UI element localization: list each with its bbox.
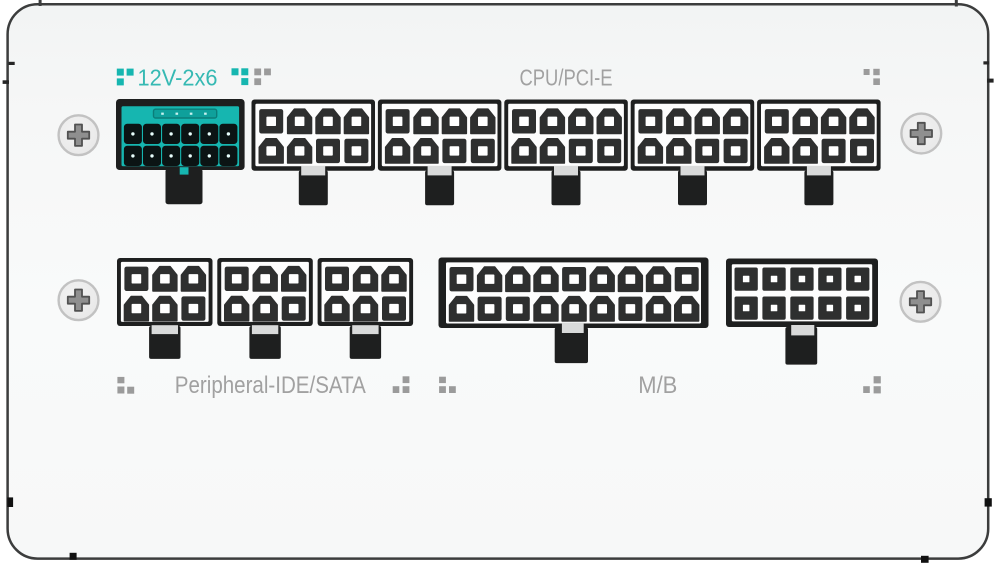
svg-text:Peripheral-IDE/SATA: Peripheral-IDE/SATA bbox=[175, 372, 366, 399]
svg-text:M/B: M/B bbox=[638, 372, 677, 399]
svg-text:CPU/PCI-E: CPU/PCI-E bbox=[520, 65, 613, 91]
svg-text:12V-2x6: 12V-2x6 bbox=[138, 65, 218, 91]
